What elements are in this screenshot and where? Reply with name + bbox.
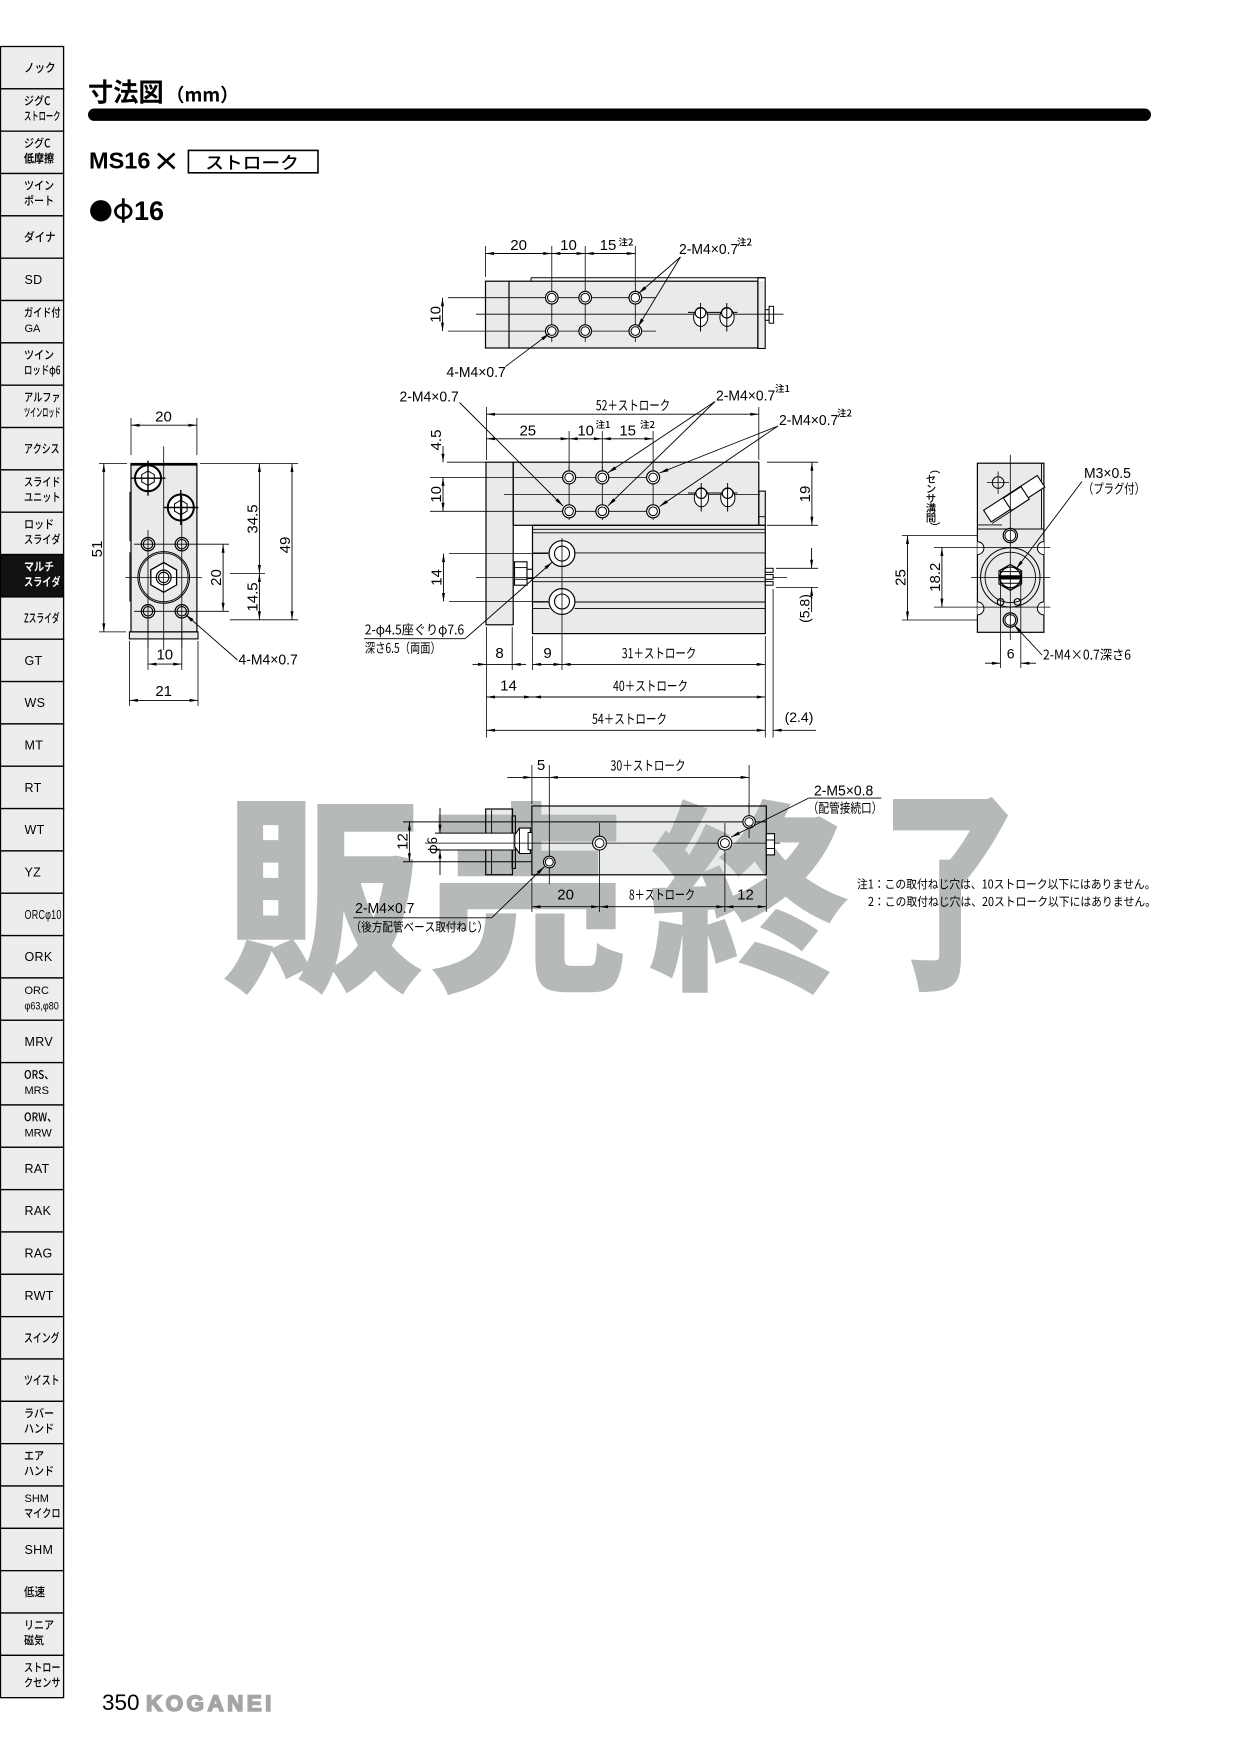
svg-text:2-M4×0.7: 2-M4×0.7 (779, 413, 838, 430)
svg-text:RAK: RAK (25, 1204, 52, 1218)
svg-text:MRW: MRW (25, 1127, 53, 1139)
svg-text:5: 5 (537, 757, 545, 774)
svg-text:YZ: YZ (25, 866, 42, 880)
svg-text:SHM: SHM (25, 1543, 54, 1557)
svg-text:WS: WS (25, 696, 46, 710)
svg-text:φ63,φ80: φ63,φ80 (25, 1001, 60, 1013)
svg-text:51: 51 (89, 541, 106, 558)
svg-text:4-M4×0.7: 4-M4×0.7 (239, 652, 298, 669)
svg-text:20: 20 (510, 237, 527, 254)
svg-text:15: 15 (619, 422, 636, 439)
svg-text:25: 25 (893, 569, 910, 586)
svg-text:RAG: RAG (25, 1247, 53, 1261)
svg-text:10: 10 (156, 647, 173, 664)
svg-text:M3×0.5: M3×0.5 (1084, 466, 1131, 483)
svg-text:KOGANEI: KOGANEI (146, 1691, 275, 1716)
svg-text:12: 12 (737, 887, 754, 904)
svg-text:6: 6 (1007, 646, 1015, 662)
svg-text:49: 49 (277, 537, 294, 554)
svg-text:10: 10 (428, 306, 445, 323)
svg-text:4.5: 4.5 (428, 430, 445, 451)
svg-text:16: 16 (134, 196, 164, 226)
svg-text:RT: RT (25, 781, 42, 795)
svg-text:RAT: RAT (25, 1162, 50, 1176)
svg-text:GT: GT (25, 654, 43, 668)
svg-text:10: 10 (560, 237, 577, 254)
svg-text:18.2: 18.2 (927, 563, 944, 592)
svg-text:14: 14 (429, 569, 446, 586)
svg-text:20: 20 (155, 409, 172, 426)
svg-text:34.5: 34.5 (244, 504, 261, 533)
svg-text:9: 9 (543, 645, 551, 662)
svg-text:350: 350 (102, 1690, 140, 1715)
svg-text:8: 8 (495, 645, 503, 662)
svg-text:SD: SD (25, 273, 43, 287)
svg-text:2-M4×0.7: 2-M4×0.7 (400, 389, 459, 406)
svg-text:GA: GA (25, 323, 42, 335)
svg-text:ORK: ORK (25, 950, 53, 964)
svg-text:20: 20 (557, 887, 574, 904)
svg-text:12: 12 (394, 833, 411, 850)
svg-text:WT: WT (25, 823, 45, 837)
svg-text:14: 14 (500, 678, 517, 695)
svg-text:10: 10 (577, 422, 594, 439)
svg-text:2-M4×0.7: 2-M4×0.7 (679, 242, 738, 259)
svg-text:(2.4): (2.4) (785, 709, 814, 725)
svg-text:SHM: SHM (25, 1493, 49, 1505)
svg-text:10: 10 (428, 486, 445, 503)
svg-text:4-M4×0.7: 4-M4×0.7 (447, 365, 506, 382)
svg-text:20: 20 (208, 569, 225, 586)
svg-text:ORC: ORC (25, 985, 50, 997)
svg-text:(5.8): (5.8) (797, 594, 813, 623)
svg-text:14.5: 14.5 (244, 582, 261, 611)
svg-text:19: 19 (797, 486, 814, 503)
svg-text:RWT: RWT (25, 1289, 54, 1303)
svg-text:2-M5×0.8: 2-M5×0.8 (814, 783, 873, 800)
svg-text:25: 25 (519, 422, 536, 439)
svg-text:MRS: MRS (25, 1085, 49, 1097)
svg-text:2-M4×0.7: 2-M4×0.7 (355, 901, 414, 918)
svg-text:MT: MT (25, 739, 44, 753)
svg-text:MRV: MRV (25, 1035, 54, 1049)
svg-text:ORCφ10: ORCφ10 (25, 909, 62, 923)
svg-text:2-M4×0.7: 2-M4×0.7 (716, 388, 775, 405)
svg-text:15: 15 (600, 237, 617, 254)
svg-text:MS16: MS16 (89, 147, 150, 173)
svg-text:21: 21 (155, 683, 172, 700)
